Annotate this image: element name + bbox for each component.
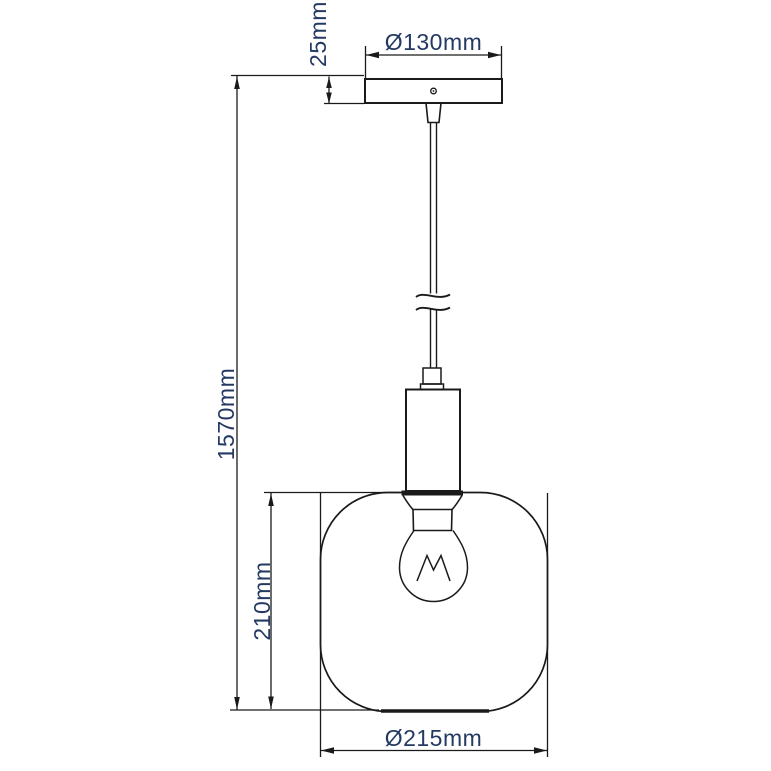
pendant-lamp-dimension-drawing: Ø130mm 25mm 1570mm 210mm Ø215mm: [0, 0, 771, 771]
holder-skirt: [403, 496, 462, 531]
socket-body: [406, 390, 460, 492]
dim-total-height-label: 1570mm: [213, 368, 239, 460]
dim-canopy-height-label: 25mm: [305, 1, 331, 67]
dim-shade-diameter: Ø215mm: [321, 493, 548, 757]
dim-shade-height-label: 210mm: [249, 561, 275, 640]
strain-relief: [423, 368, 441, 384]
dim-total-height: 1570mm: [213, 76, 379, 711]
bulb: [400, 531, 468, 602]
cord: [416, 123, 450, 369]
dim-shade-height: 210mm: [249, 493, 402, 710]
bulb-filament-icon: [417, 556, 450, 582]
technical-drawing-canvas: Ø130mm 25mm 1570mm 210mm Ø215mm: [0, 0, 771, 771]
dim-canopy-diameter: Ø130mm: [366, 29, 502, 78]
cord-grip: [426, 103, 441, 123]
dim-canopy-diameter-label: Ø130mm: [385, 29, 483, 55]
bulb-glass: [400, 531, 468, 602]
cord-break-symbol: [416, 295, 450, 311]
dim-canopy-height: 25mm: [305, 1, 364, 103]
dim-shade-diameter-label: Ø215mm: [385, 725, 483, 751]
socket: [402, 368, 464, 531]
canopy: [365, 79, 502, 123]
canopy-screw-dot: [433, 90, 435, 92]
